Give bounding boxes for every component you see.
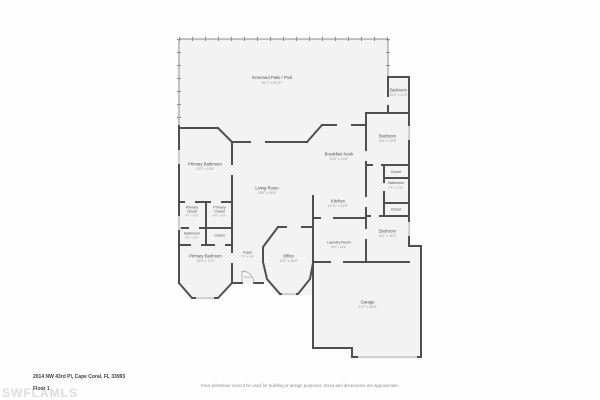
room-label-screened-patio: Screened Patio / Pool (252, 75, 293, 80)
room-dims-bathroom-right: 6'5" x 9'11" (388, 186, 403, 190)
floor-plan: Screened Patio / Pool 51'7" x 21'11" Bed… (0, 0, 600, 400)
disclaimer-text: Floor plans/tour cannot be used for buil… (0, 383, 600, 388)
room-dims-breakfast-nook: 10'0" x 10'8" (330, 157, 349, 161)
room-dims-living-room: 18'9" x 24'8" (258, 191, 277, 195)
address-text: 2014 NW 43rd Pl, Cape Coral, FL 33993 (33, 374, 125, 380)
floorplan-page: Screened Patio / Pool 51'7" x 21'11" Bed… (0, 0, 600, 400)
room-label-entry: Entry (244, 275, 252, 279)
room-label-bathroom-right: Bathroom (388, 181, 404, 185)
room-label-office: Office (283, 254, 295, 259)
room-label-garage: Garage (361, 300, 376, 305)
room-label-bedroom-bottom-right: Bedroom (379, 229, 397, 234)
room-dims-bedroom-bottom-right: 11'1" x 11'5" (378, 234, 397, 238)
room-label-laundry-room: Laundry Room (327, 241, 351, 245)
room-dims-primary-closet-right: 4'9" x 6'5" (213, 214, 227, 218)
room-dims-garage: 21'7" x 26'5" (358, 305, 377, 309)
room-label-breakfast-nook: Breakfast Nook (325, 152, 355, 157)
room-dims-laundry-room: 8'5" x 10'6" (331, 245, 346, 249)
room-dims-primary-bathroom: 13'2" x 15'9" (196, 167, 215, 171)
room-label-kitchen: Kitchen (331, 199, 346, 204)
room-dims-office: 12'2" x 15'9" (279, 259, 298, 263)
room-label-closet-right-1: Closet (391, 170, 401, 174)
room-label-closet-left: Closet (214, 234, 224, 238)
room-dims-kitchen: 12'11" x 12'5" (328, 204, 349, 208)
room-label-closet-right-2: Closet (391, 208, 401, 212)
room-dims-primary-bedroom: 13'4" x 17'1" (196, 259, 215, 263)
room-label-primary-bedroom: Primary Bedroom (189, 254, 222, 259)
room-label-primary-bathroom: Primary Bathroom (188, 162, 222, 167)
room-label-bedroom-right: Bedroom (379, 134, 397, 139)
room-label-bedroom-top-right: Bedroom (390, 88, 408, 93)
room-dims-foyer: 7'6" x 9'5" (241, 255, 255, 259)
room-dims-screened-patio: 51'7" x 21'11" (262, 81, 283, 85)
room-dims-bedroom-right: 11'5" x 12'9" (378, 139, 397, 143)
room-dims-primary-closet-left: 4'7" x 6'5" (185, 214, 199, 218)
room-dims-bedroom-top-right: 10'1" x 11'5" (389, 93, 408, 97)
room-dims-bathroom-left: 6'5" x 4'1" (185, 236, 199, 240)
room-label-living-room: Living Room (255, 186, 279, 191)
